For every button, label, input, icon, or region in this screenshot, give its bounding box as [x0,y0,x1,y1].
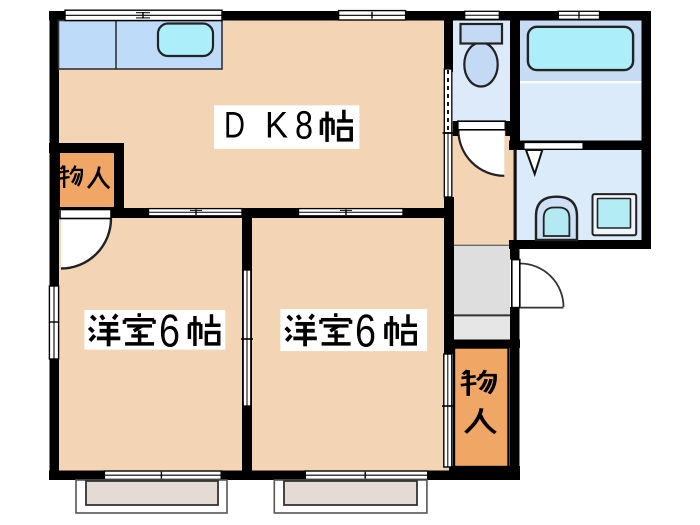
svg-text:6: 6 [159,305,180,357]
svg-text:K: K [265,105,288,146]
svg-text:6: 6 [355,305,376,357]
svg-text:8: 8 [295,104,313,148]
svg-text:D: D [224,105,245,146]
